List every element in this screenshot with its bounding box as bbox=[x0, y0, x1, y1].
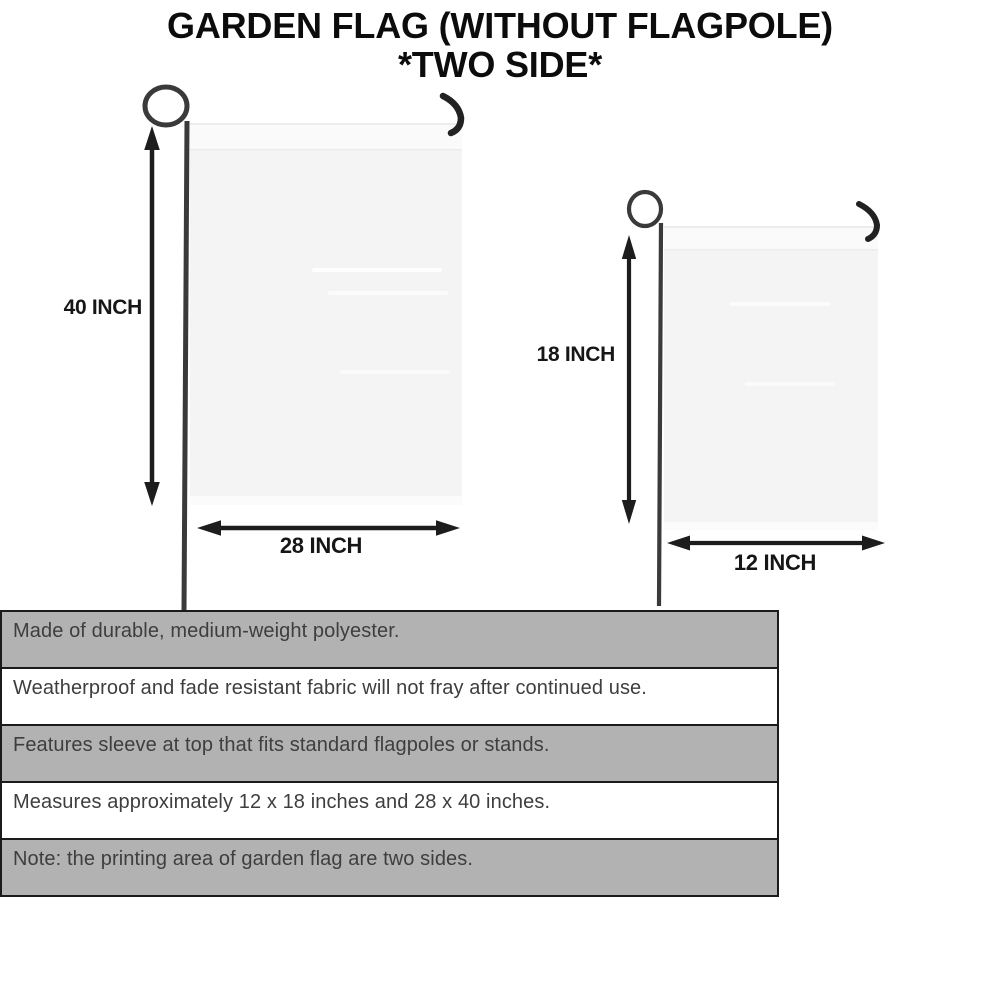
small-pole-loop-icon bbox=[629, 192, 661, 226]
small-flag-fabric bbox=[664, 226, 878, 530]
small-flag-pole bbox=[659, 223, 661, 606]
small-width-dimension-arrow bbox=[667, 536, 885, 551]
features-table: Made of durable, medium-weight polyester… bbox=[0, 610, 779, 897]
large-height-dimension-arrow bbox=[144, 126, 160, 506]
small-flag-height-label: 18 INCH bbox=[503, 343, 615, 367]
large-flag-height-label: 40 INCH bbox=[30, 296, 142, 320]
large-flag-fabric bbox=[190, 123, 462, 505]
feature-text: Measures approximately 12 x 18 inches an… bbox=[13, 791, 550, 813]
large-flag-sleeve bbox=[190, 123, 462, 150]
small-flag-sleeve bbox=[664, 226, 878, 250]
feature-text: Made of durable, medium-weight polyester… bbox=[13, 620, 400, 642]
large-flag-pole bbox=[184, 121, 187, 611]
feature-row-measurements: Measures approximately 12 x 18 inches an… bbox=[2, 781, 777, 838]
small-flag-diagram bbox=[622, 192, 885, 606]
product-infographic: GARDEN FLAG (WITHOUT FLAGPOLE) *TWO SIDE… bbox=[0, 0, 1000, 1000]
large-pole-loop-icon bbox=[145, 87, 187, 125]
feature-row-weatherproof: Weatherproof and fade resistant fabric w… bbox=[2, 667, 777, 724]
feature-text: Features sleeve at top that fits standar… bbox=[13, 734, 550, 756]
large-flag-width-label: 28 INCH bbox=[261, 533, 381, 559]
feature-row-material: Made of durable, medium-weight polyester… bbox=[2, 612, 777, 667]
feature-row-sleeve: Features sleeve at top that fits standar… bbox=[2, 724, 777, 781]
small-flag-width-label: 12 INCH bbox=[715, 550, 835, 576]
small-height-dimension-arrow bbox=[622, 235, 636, 524]
feature-text: Weatherproof and fade resistant fabric w… bbox=[13, 677, 647, 699]
feature-text: Note: the printing area of garden flag a… bbox=[13, 848, 473, 870]
feature-row-note: Note: the printing area of garden flag a… bbox=[2, 838, 777, 895]
